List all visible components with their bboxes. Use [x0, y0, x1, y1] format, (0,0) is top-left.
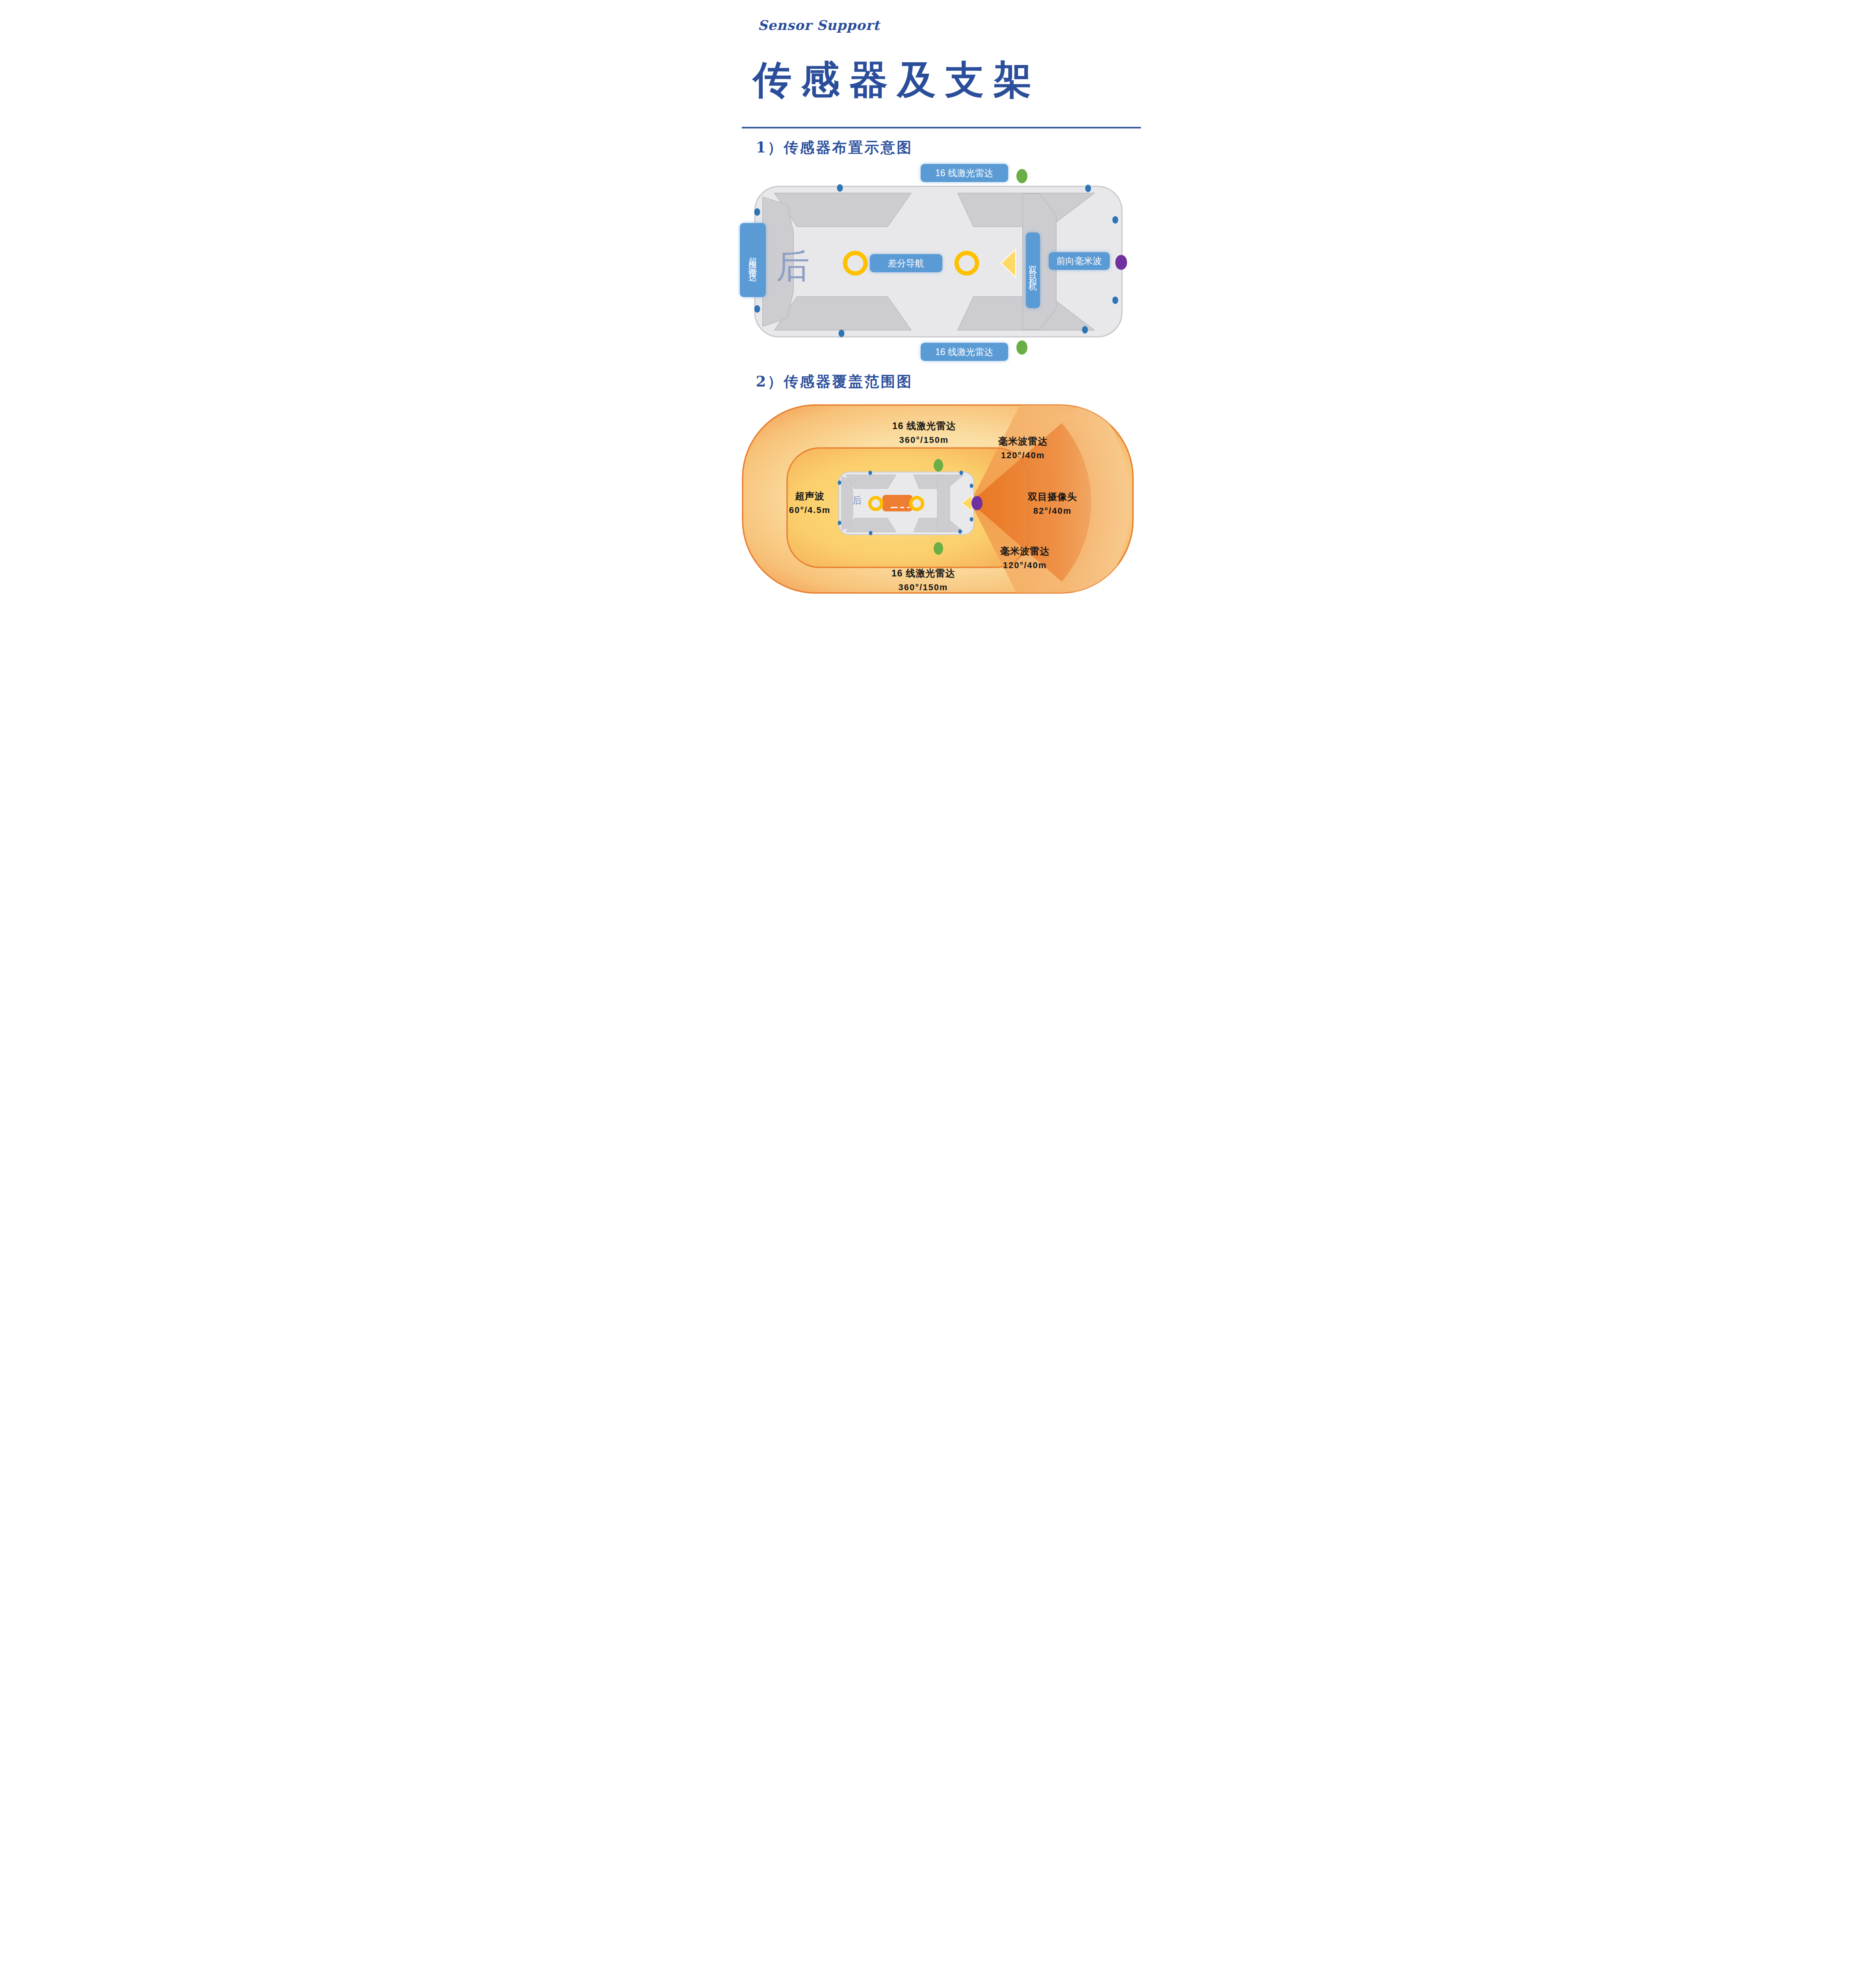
title-divider: [742, 127, 1141, 128]
lidar-marker-icon-top: [1016, 169, 1027, 183]
coverage-label-lidar-bottom: 16 线激光雷达 360°/150m: [872, 566, 975, 595]
coverage-label-spec: 120°/40m: [976, 448, 1070, 463]
brand-logo-text: Sensor Support: [758, 17, 880, 33]
ultrasonic-dot-icon: [837, 184, 843, 192]
nav-unit-block: [882, 495, 912, 511]
label-ultrasonic-radar: 超声波雷达: [740, 223, 766, 297]
coverage-label-spec: 360°/150m: [873, 433, 975, 447]
ultrasonic-dot-icon: [958, 530, 962, 534]
page-title: 传感器及支架: [753, 54, 1042, 106]
document-page: Sensor Support 传感器及支架 1）传感器布置示意图: [704, 0, 1173, 606]
mmw-radar-marker-icon: [1115, 255, 1127, 270]
coverage-label-mmw-top: 毫米波雷达 120°/40m: [976, 434, 1070, 463]
lidar-marker-icon-top: [934, 459, 943, 472]
coverage-label-name: 超声波: [775, 489, 845, 503]
ultrasonic-dot-icon: [869, 531, 872, 535]
coverage-label-name: 16 线激光雷达: [872, 566, 975, 580]
coverage-label-name: 双目摄像头: [1005, 489, 1100, 504]
ultrasonic-dot-icon: [838, 521, 841, 525]
label-stereo-camera: 双目相机: [1026, 232, 1040, 308]
coverage-label-ultrasonic: 超声波 60°/4.5m: [775, 489, 845, 517]
coverage-label-spec: 60°/4.5m: [775, 503, 845, 517]
lidar-marker-icon-bottom: [1016, 340, 1027, 355]
cabin-panel-bottom-left: [775, 297, 911, 330]
coverage-label-mmw-bottom: 毫米波雷达 120°/40m: [978, 544, 1072, 572]
label-lidar-top: 16 线激光雷达: [921, 164, 1008, 182]
ultrasonic-dot-icon: [838, 330, 844, 337]
ultrasonic-dot-icon: [970, 517, 973, 522]
coverage-label-name: 16 线激光雷达: [873, 418, 975, 433]
ultrasonic-dot-icon: [838, 481, 841, 485]
ultrasonic-dot-icon: [1082, 326, 1088, 334]
label-lidar-bottom: 16 线激光雷达: [921, 343, 1008, 361]
ultrasonic-dot-icon: [970, 484, 973, 488]
rear-direction-text: 后: [776, 243, 810, 290]
coverage-label-name: 毫米波雷达: [976, 434, 1070, 448]
coverage-label-spec: 120°/40m: [978, 558, 1072, 572]
cabin-panel: [846, 518, 896, 532]
ultrasonic-dot-icon: [1085, 185, 1091, 192]
coverage-label-name: 毫米波雷达: [978, 544, 1072, 558]
ultrasonic-dot-icon: [868, 471, 872, 475]
section-heading-coverage: 2）传感器覆盖范围图: [756, 372, 913, 392]
section-heading-layout: 1）传感器布置示意图: [756, 138, 913, 158]
lidar-marker-icon-bottom: [934, 542, 943, 555]
mmw-radar-marker-icon: [971, 496, 983, 510]
cabin-panel-top-left: [775, 193, 911, 227]
cabin-panel: [846, 475, 896, 489]
ultrasonic-dot-icon: [1112, 216, 1118, 224]
label-differential-navigation: 差分导航: [870, 254, 942, 272]
cabin-windshield: [937, 475, 950, 532]
coverage-label-spec: 82°/40m: [1005, 504, 1100, 518]
rear-direction-text-small: 后: [853, 494, 862, 507]
ultrasonic-dot-icon: [754, 208, 760, 216]
ultrasonic-dot-icon: [1112, 297, 1118, 304]
ultrasonic-dot-icon: [754, 305, 760, 313]
coverage-label-spec: 360°/150m: [872, 580, 975, 595]
coverage-label-lidar-top: 16 线激光雷达 360°/150m: [873, 418, 975, 447]
label-forward-mmw: 前向毫米波: [1049, 252, 1110, 270]
coverage-label-stereo-camera: 双目摄像头 82°/40m: [1005, 489, 1100, 518]
ultrasonic-dot-icon: [959, 471, 963, 475]
